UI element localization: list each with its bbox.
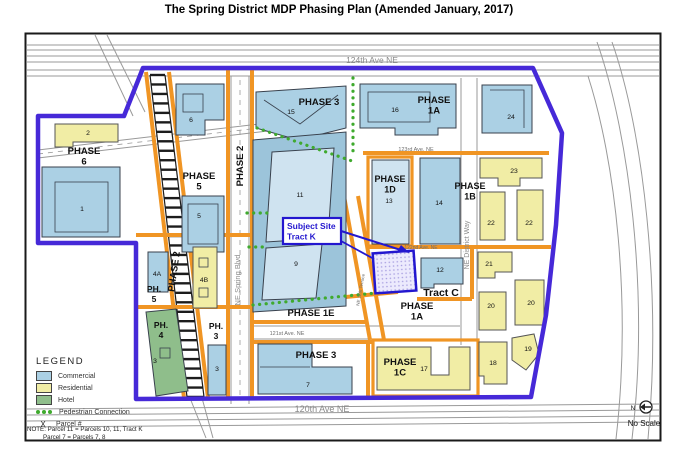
page: The Spring District MDP Phasing Plan (Am… — [0, 0, 678, 455]
label-tract-c: Tract C — [423, 287, 459, 299]
label-north-n: N — [631, 405, 636, 412]
parcel-number-6-7: 6 — [189, 117, 193, 124]
hotel-swatch — [36, 395, 52, 405]
legend-item-hotel: Hotel — [36, 394, 176, 406]
parcel-number-5-6: 5 — [197, 213, 201, 220]
legend: LEGEND Commercial Residential Hotel Pede… — [36, 356, 176, 430]
residential-swatch — [36, 383, 52, 393]
parcel-20-west — [479, 292, 506, 330]
legend-item-residential: Residential — [36, 382, 176, 394]
commercial-swatch — [36, 371, 52, 381]
parcel-number-11-10: 11 — [296, 192, 303, 199]
legend-item-commercial: Commercial — [36, 370, 176, 382]
parcel-number-20-19: 20 — [487, 303, 495, 310]
parcel-number-19-18: 19 — [524, 346, 532, 353]
parcel-number-7-8: 7 — [306, 382, 310, 389]
parcel-number-12-11: 12 — [436, 267, 444, 274]
label-street-123rd-ave-ne: 123rd Ave. NE — [398, 147, 434, 153]
parcel-number-13-12: 13 — [385, 198, 393, 205]
label-street-124th-ave-ne: 124th Ave NE — [346, 55, 398, 65]
parcel-22-west — [480, 192, 505, 240]
label-street-ne-spring-blvd: NE Spring Blvd — [233, 255, 242, 306]
page-title: The Spring District MDP Phasing Plan (Am… — [0, 4, 678, 16]
parcel-24 — [482, 85, 532, 133]
parcel-22-east — [517, 190, 543, 240]
parcel-number-23-24: 23 — [510, 168, 518, 175]
parcel-number-15-14: 15 — [287, 109, 295, 116]
label-phase-3-top: PHASE 3 — [299, 97, 340, 108]
label-phase-3-bottom: PHASE 3 — [296, 350, 337, 361]
north-arrow — [640, 401, 652, 413]
parcel-number-2-1: 2 — [86, 130, 90, 137]
parcel-9 — [262, 244, 322, 300]
parcel-number-14-13: 14 — [435, 200, 443, 207]
note-line-2: Parcel 7 = Parcels 7, 8 — [27, 434, 143, 442]
parcel-number-21-21: 21 — [485, 261, 493, 268]
legend-note: NOTE: Parcel 11 = Parcels 10, 11, Tract … — [27, 426, 143, 442]
pedestrian-dots-icon — [36, 410, 56, 414]
label-street-120th-ave-ne: 120th Ave NE — [295, 404, 350, 414]
label-street-122nd-ave-ne: 122nd Ave. NE — [404, 245, 438, 251]
label-phase-2-street: PHASE 2 — [235, 146, 246, 187]
parcel-number-16-15: 16 — [391, 107, 399, 114]
legend-item-pedestrian: Pedestrian Connection — [36, 406, 176, 418]
parcel-number-17-16: 17 — [420, 366, 428, 373]
parcel-number-22-23: 22 — [525, 220, 533, 227]
legend-title: LEGEND — [36, 356, 176, 367]
parcel-number-3-3: 3 — [215, 366, 219, 373]
parcel-number-22-22: 22 — [487, 220, 495, 227]
parcel-number-4A-4: 4A — [153, 271, 162, 278]
parcel-number-20-20: 20 — [527, 300, 535, 307]
label-no-scale: No Scale — [628, 419, 661, 428]
parcel-number-18-17: 18 — [489, 360, 497, 367]
label-phase-1e: PHASE 1E — [288, 308, 335, 319]
label-street-121st-ave-ne: 121st Ave. NE — [270, 331, 305, 337]
parcel-number-1-0: 1 — [80, 206, 84, 213]
tract-k — [373, 251, 417, 294]
note-line-1: NOTE: Parcel 11 = Parcels 10, 11, Tract … — [27, 426, 143, 434]
parcel-number-9-9: 9 — [294, 261, 298, 268]
label-street-ne-district-way: NE District Way — [464, 220, 471, 269]
parcel-number-4B-5: 4B — [200, 277, 209, 284]
parcel-number-24-25: 24 — [507, 114, 515, 121]
